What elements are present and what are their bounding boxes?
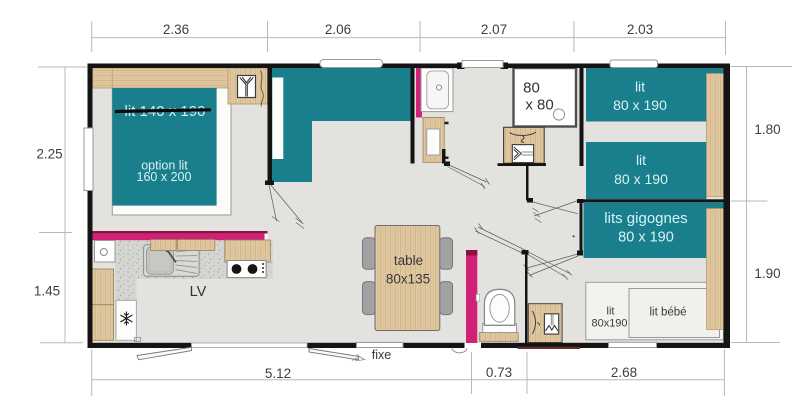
svg-text:2.36: 2.36	[163, 22, 189, 37]
svg-text:80 x 190: 80 x 190	[614, 171, 668, 187]
svg-text:160 x 200: 160 x 200	[137, 170, 192, 184]
svg-text:lit bébé: lit bébé	[649, 307, 686, 319]
svg-text:LV: LV	[190, 284, 207, 300]
svg-text:0.73: 0.73	[486, 365, 512, 380]
svg-text:1.80: 1.80	[754, 122, 780, 137]
svg-text:lit: lit	[635, 79, 645, 95]
svg-text:80x135: 80x135	[386, 272, 430, 287]
svg-text:x 80: x 80	[525, 97, 553, 114]
svg-text:80 x 190: 80 x 190	[618, 230, 674, 246]
svg-text:2.03: 2.03	[627, 22, 653, 37]
svg-text:2.68: 2.68	[611, 365, 637, 380]
svg-text:1.45: 1.45	[34, 284, 60, 299]
svg-text:5.12: 5.12	[265, 366, 291, 381]
svg-text:2.06: 2.06	[325, 22, 351, 37]
svg-text:lit: lit	[607, 306, 615, 318]
svg-text:lits gigognes: lits gigognes	[604, 210, 687, 227]
svg-text:80: 80	[523, 80, 540, 97]
svg-text:2.07: 2.07	[481, 22, 507, 37]
svg-text:80 x 190: 80 x 190	[613, 97, 667, 113]
svg-text:80x190: 80x190	[591, 318, 627, 330]
svg-text:fixe: fixe	[372, 348, 392, 362]
svg-text:lit: lit	[636, 152, 646, 168]
svg-text:1.90: 1.90	[754, 266, 780, 281]
svg-text:table: table	[394, 253, 423, 268]
svg-text:2.25: 2.25	[36, 147, 62, 162]
